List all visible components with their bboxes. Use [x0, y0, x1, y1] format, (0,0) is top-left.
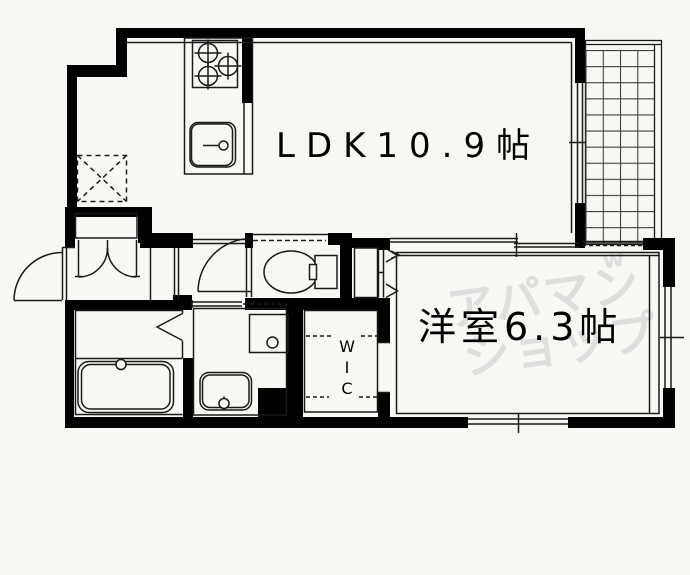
wall-bath-wash-divider — [183, 358, 193, 420]
wall-bottom-left — [65, 417, 468, 428]
wic-letter-c: C — [341, 379, 352, 398]
watermark-w-mark: w — [600, 244, 626, 275]
floorplan-svg: アパマン ショップ w — [0, 0, 690, 575]
wic-letter-w: W — [339, 337, 355, 356]
wall-hall-bottom-step — [173, 295, 192, 308]
balcony-grid — [586, 50, 655, 243]
ldk-label: LDK10.9帖 — [276, 126, 541, 166]
bathtub-faucet — [116, 360, 126, 370]
wall-entry-left — [65, 207, 75, 248]
toilet-tank — [315, 256, 337, 289]
kitchen-sink-faucet — [219, 141, 228, 150]
wall-left-upper — [67, 65, 77, 217]
wall-right-lower — [663, 388, 675, 428]
western-room-label: 洋室6.3帖 — [418, 305, 622, 349]
wall-left-lower — [65, 300, 74, 428]
washbasin-faucet — [219, 399, 229, 409]
wall-room-left-bottom — [378, 393, 390, 420]
wall-hall-bottom — [65, 300, 192, 310]
wall-room-left-mid — [378, 298, 390, 342]
wall-kitchen-counter-right — [242, 28, 253, 103]
wall-wic-top — [303, 298, 390, 310]
wall-corner-northeast-of-room — [643, 238, 675, 250]
wall-hall-top-left — [140, 233, 193, 248]
balcony — [586, 41, 662, 245]
wall-right-upper — [663, 245, 675, 287]
wic-letter-i: I — [345, 358, 350, 377]
toilet-flush-step — [310, 265, 317, 280]
wall-bottom-right — [568, 417, 675, 428]
floorplan-image: アパマン ショップ w — [0, 0, 690, 575]
wall-top — [116, 28, 585, 38]
wall-pipe-space — [258, 388, 293, 417]
wall-ldk-right-upper — [575, 28, 585, 83]
